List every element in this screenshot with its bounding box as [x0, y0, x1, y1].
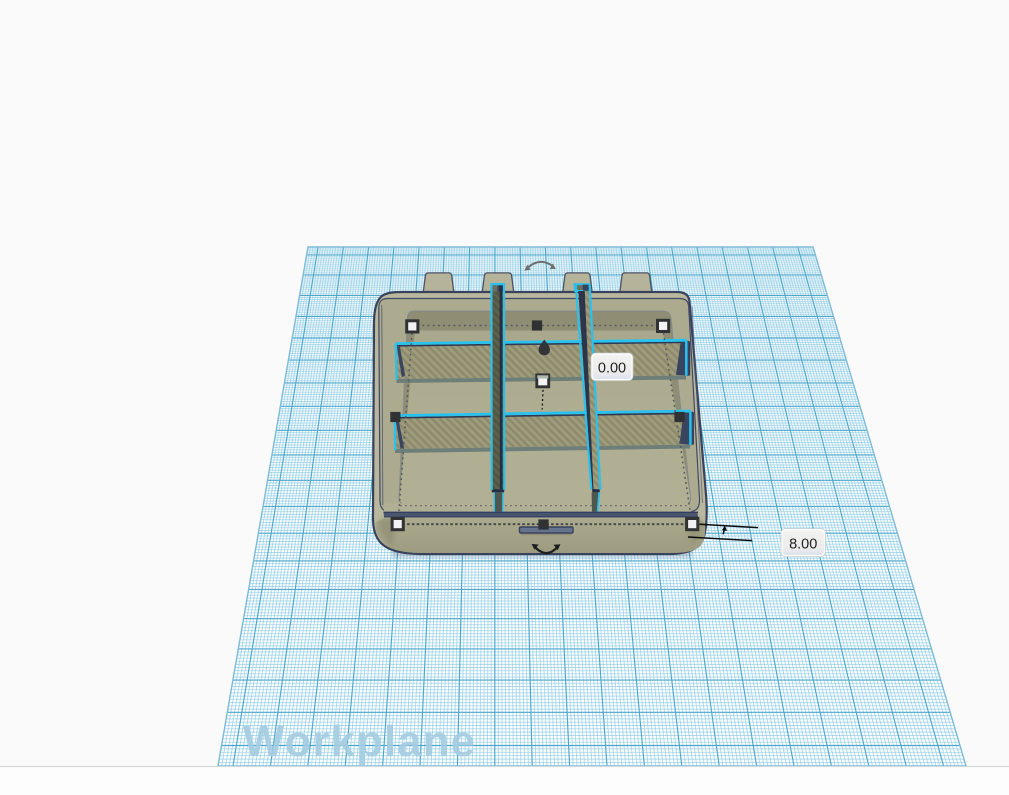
svg-text:0.00: 0.00 — [598, 360, 626, 376]
svg-text:8.00: 8.00 — [789, 536, 817, 552]
svg-text:Workplane: Workplane — [243, 718, 476, 766]
